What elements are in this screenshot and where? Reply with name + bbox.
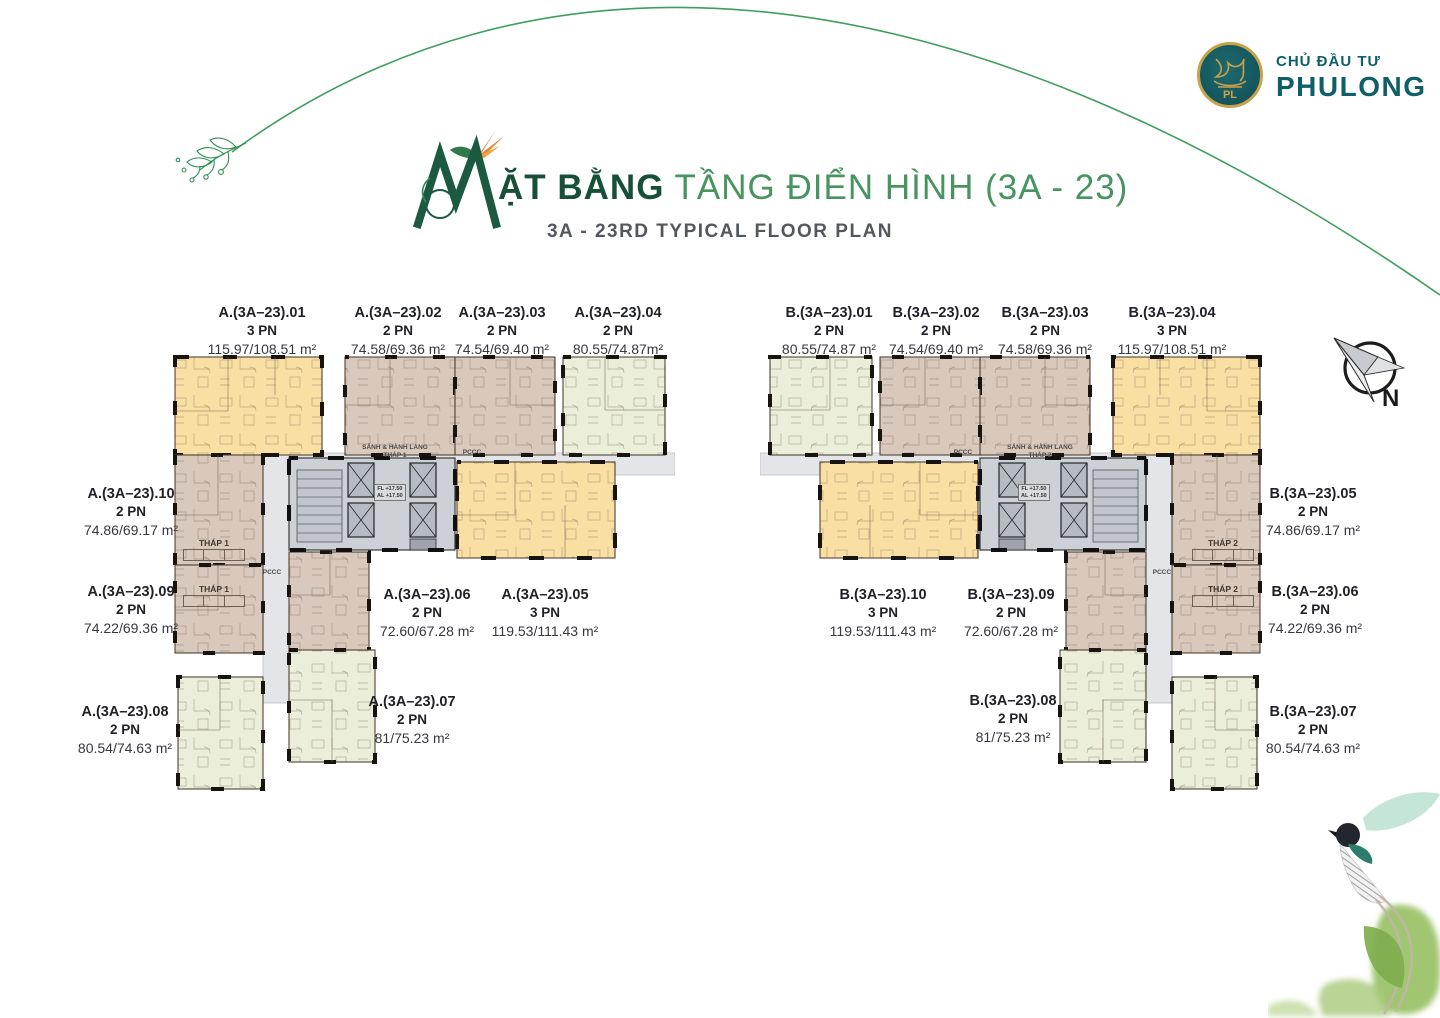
tower-a-pccc-label: PCCC	[452, 449, 492, 457]
unit-label-b07: B.(3A–23).072 PN80.54/74.63 m²	[1233, 703, 1393, 757]
unit-label-a08: A.(3A–23).082 PN80.54/74.63 m²	[45, 703, 205, 757]
unit-label-a10: A.(3A–23).102 PN74.86/69.17 m²	[51, 485, 211, 539]
unit-label-a04: A.(3A–23).042 PN80.55/74.87m²	[538, 304, 698, 358]
phulong-logo: PL	[1197, 42, 1263, 108]
unit-label-a05: A.(3A–23).053 PN119.53/111.43 m²	[465, 586, 625, 640]
tower-b-tag-1: THÁP 2	[1192, 538, 1254, 561]
title-regular-part: TẦNG ĐIỂN HÌNH (3A - 23)	[664, 168, 1128, 207]
tower-b-lobby-label: SẢNH & HÀNH LANGTHÁP 2	[975, 444, 1105, 459]
leaf-sprig-icon	[176, 138, 246, 182]
tower-a-pccc-vertical-label: PCCC	[256, 569, 288, 577]
unit-label-b05: B.(3A–23).052 PN74.86/69.17 m²	[1233, 485, 1393, 539]
developer-wordmark: CHỦ ĐẦU TƯ PHULONG	[1276, 53, 1427, 103]
compass-n-label: N	[1382, 385, 1399, 412]
tower-b-pccc-label: PCCC	[943, 449, 983, 457]
unit-label-b06: B.(3A–23).062 PN74.22/69.36 m²	[1235, 583, 1395, 637]
tower-a-lobby-label: SẢNH & HÀNH LANGTHÁP 1	[330, 444, 460, 459]
dragon-emblem-icon: PL	[1202, 47, 1258, 103]
tower-a-tag-1: THÁP 1	[183, 538, 245, 561]
unit-label-b09: B.(3A–23).092 PN72.60/67.28 m²	[931, 586, 1091, 640]
page-subtitle: 3A - 23RD TYPICAL FLOOR PLAN	[420, 221, 1020, 243]
title-bold-part: ẶT BẰNG	[498, 168, 664, 207]
unit-label-b08: B.(3A–23).082 PN81/75.23 m²	[933, 692, 1093, 746]
developer-label: CHỦ ĐẦU TƯ	[1276, 53, 1427, 70]
tower-a-core-note: FL +17.50AL +17.50	[374, 484, 406, 501]
tower-b-pccc-vertical-label: PCCC	[1146, 569, 1178, 577]
north-compass-icon: N	[1318, 330, 1418, 412]
logo-monogram: PL	[1223, 89, 1237, 101]
unit-label-b04: B.(3A–23).043 PN115.97/108.51 m²	[1092, 304, 1252, 358]
unit-label-a07: A.(3A–23).072 PN81/75.23 m²	[332, 693, 492, 747]
tower-b-core-note: FL +17.50AL +17.50	[1018, 484, 1050, 501]
bird-illustration	[1268, 778, 1440, 1018]
floor-plan-page: PL CHỦ ĐẦU TƯ PHULONG ẶT BẰNG TẦNG ĐIỂN …	[0, 0, 1440, 1018]
unit-label-a09: A.(3A–23).092 PN74.22/69.36 m²	[51, 583, 211, 637]
developer-name: PHULONG	[1276, 71, 1427, 103]
page-title: ẶT BẰNG TẦNG ĐIỂN HÌNH (3A - 23)	[498, 168, 1128, 208]
